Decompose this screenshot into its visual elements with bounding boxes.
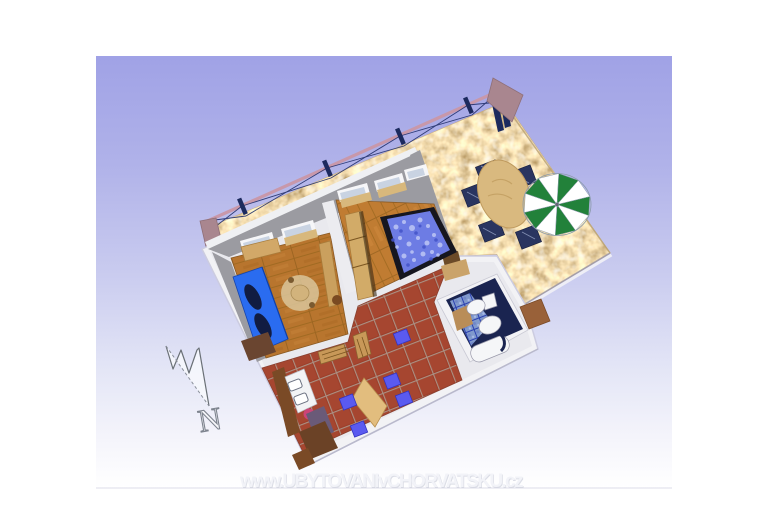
svg-text:www.UBYTOVANIvCHORVATSKU.cz: www.UBYTOVANIvCHORVATSKU.cz — [239, 471, 524, 492]
